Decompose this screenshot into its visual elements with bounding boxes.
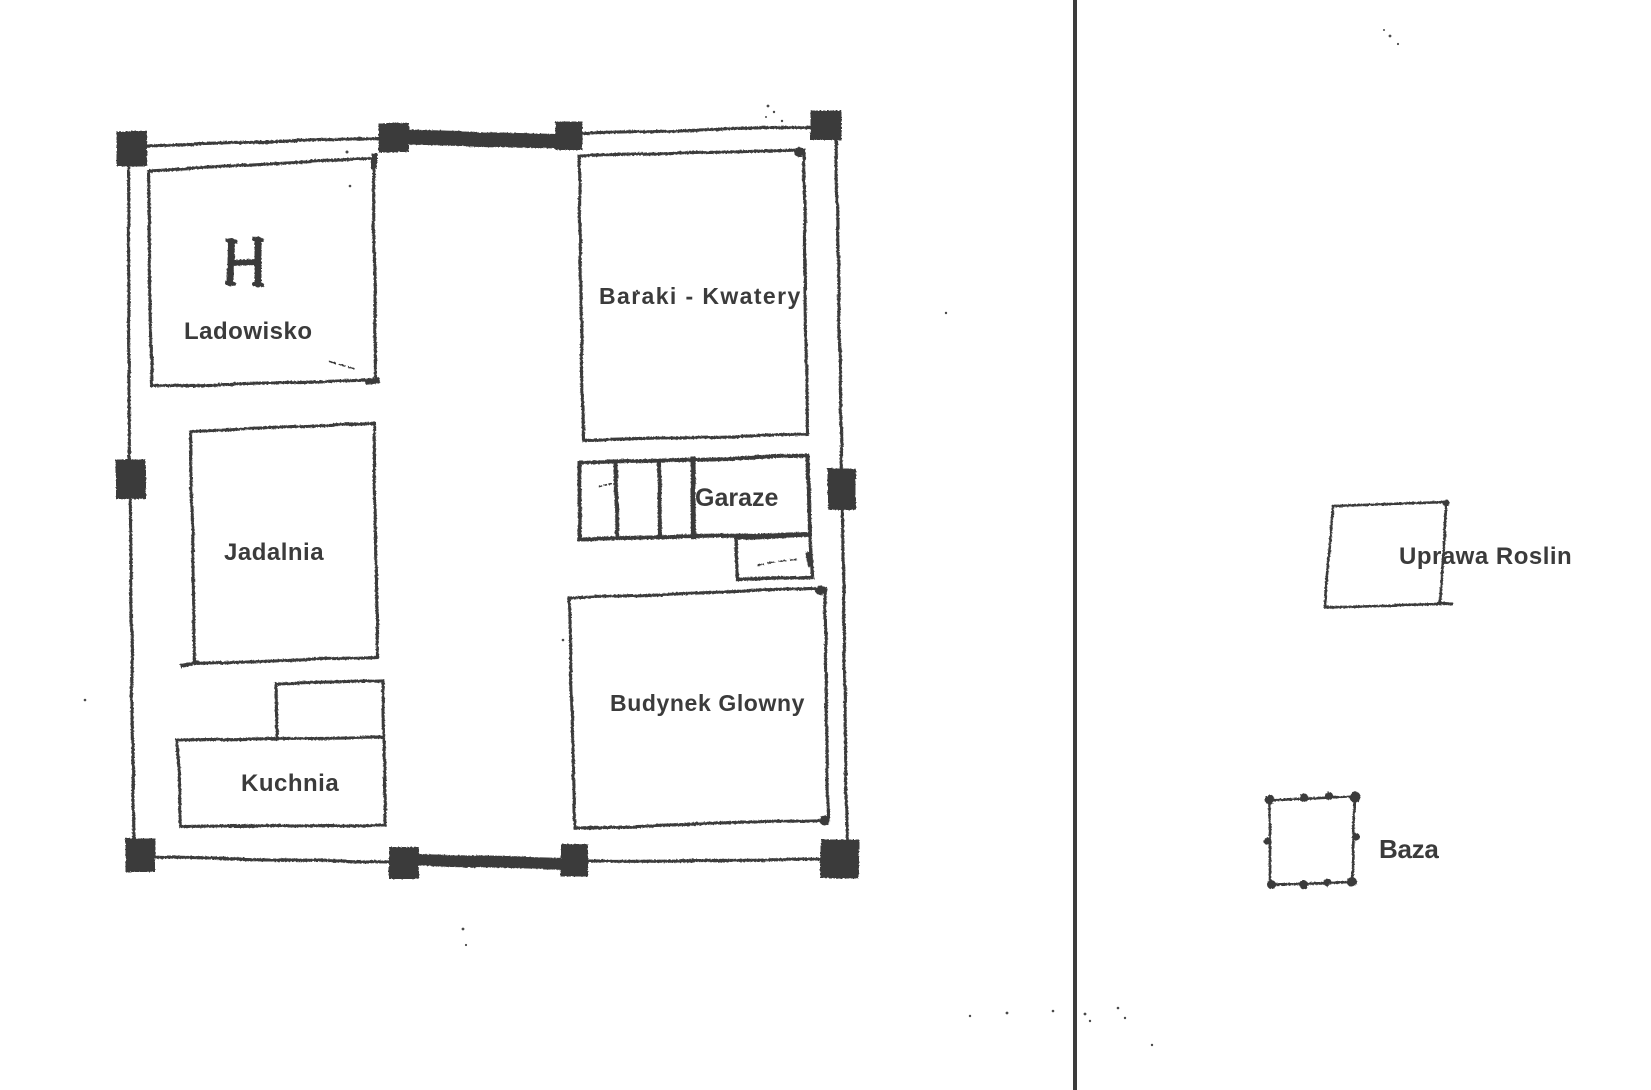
svg-text:Budynek Glowny: Budynek Glowny (610, 690, 805, 716)
svg-text:Kuchnia: Kuchnia (241, 770, 339, 797)
svg-text:Baza: Baza (1379, 834, 1439, 864)
svg-text:Jadalnia: Jadalnia (224, 539, 324, 566)
svg-text:Garaze: Garaze (695, 484, 778, 512)
svg-text:Ladowisko: Ladowisko (184, 318, 313, 345)
svg-text:Baraki - Kwatery: Baraki - Kwatery (599, 283, 802, 309)
svg-text:Uprawa Roslin: Uprawa Roslin (1399, 543, 1572, 570)
